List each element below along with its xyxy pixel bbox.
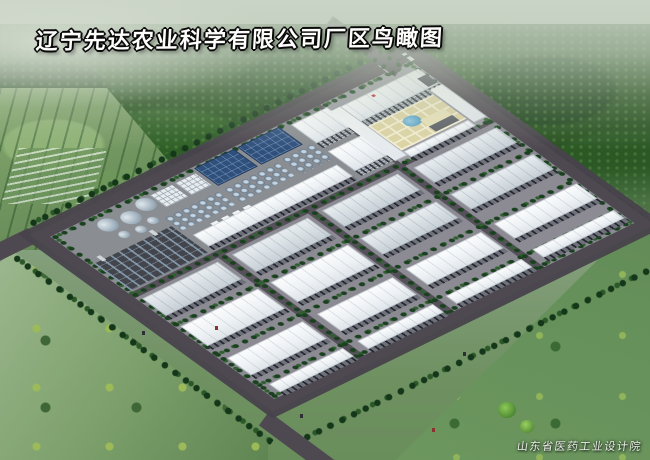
cyclist-figure (432, 428, 435, 432)
design-institute-credit: 山东省医药工业设计院 (516, 438, 643, 454)
pedestrian-figure (300, 414, 303, 418)
pedestrian-figure (142, 331, 145, 335)
tree (520, 420, 534, 433)
tree (498, 402, 516, 418)
cyclist-figure (215, 326, 218, 330)
pedestrian-figure (463, 352, 466, 356)
aerial-rendering: 辽宁先达农业科学有限公司厂区鸟瞰图 山东省医药工业设计院 (0, 0, 650, 460)
page-title: 辽宁先达农业科学有限公司厂区鸟瞰图 (35, 20, 445, 56)
